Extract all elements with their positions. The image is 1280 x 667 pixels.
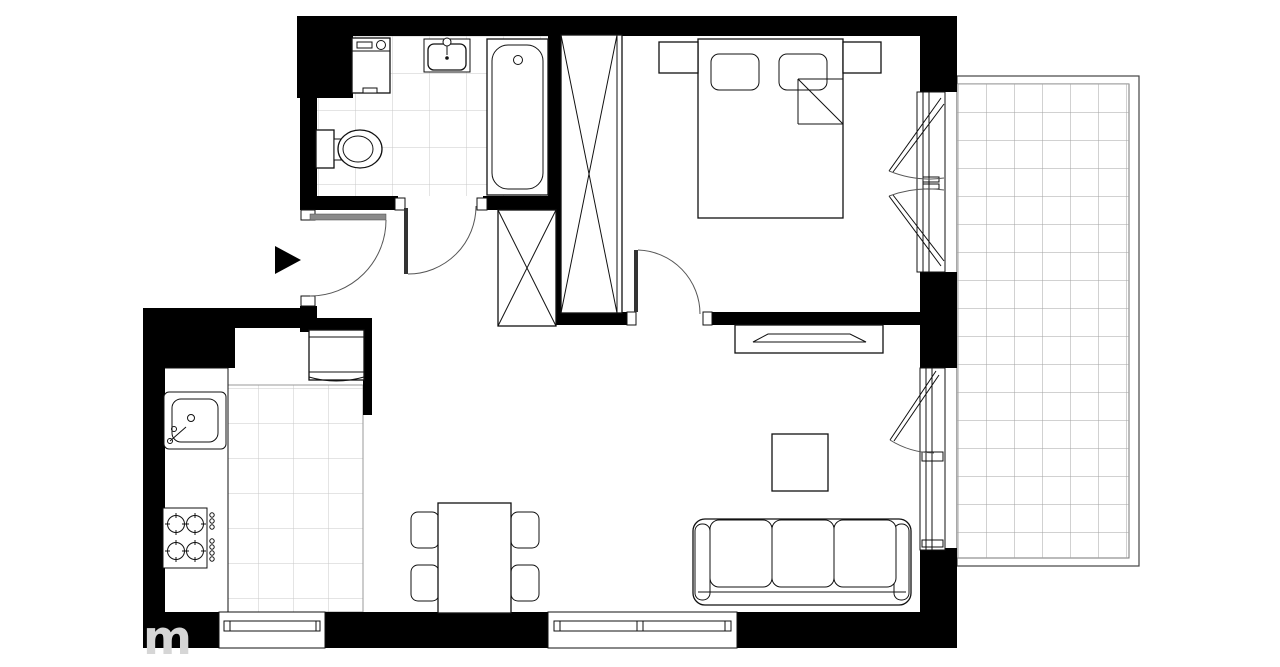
tv-cabinet-symbol xyxy=(735,325,883,353)
fridge-symbol xyxy=(309,330,364,381)
kitchen-window xyxy=(219,612,325,648)
washing-machine-symbol xyxy=(352,38,390,93)
toilet-symbol xyxy=(316,130,382,168)
chair-symbol xyxy=(511,565,539,601)
balcony xyxy=(957,76,1139,566)
bathtub-symbol xyxy=(487,39,548,195)
floor-plan-page: m xyxy=(0,0,1280,667)
cooktop-knobs xyxy=(210,513,214,561)
cooktop-symbol xyxy=(163,508,214,568)
hall-wardrobe-symbol xyxy=(498,210,556,326)
nightstand-left-symbol xyxy=(659,42,698,73)
tv-symbol xyxy=(753,334,866,342)
chair-symbol xyxy=(511,512,539,548)
coffee-table-symbol xyxy=(772,434,828,491)
nightstand-right-symbol xyxy=(843,42,881,73)
floor-plan: m xyxy=(0,0,1280,667)
kitchen-tiles xyxy=(228,385,363,612)
entrance-arrow-icon xyxy=(275,246,301,274)
bedroom-casement-window xyxy=(889,92,945,272)
dining-set-symbol xyxy=(411,503,539,613)
dining-table-symbol xyxy=(438,503,511,613)
living-room-window xyxy=(548,612,737,648)
bedroom-door xyxy=(627,250,712,325)
chair-symbol xyxy=(411,565,439,601)
bathroom-door xyxy=(395,198,487,274)
bedroom-wardrobe-symbol xyxy=(561,35,622,313)
watermark-letter: m xyxy=(143,611,192,666)
chair-symbol xyxy=(411,512,439,548)
kitchen-sink-symbol xyxy=(164,392,226,449)
entrance-door xyxy=(301,210,386,306)
sofa-symbol xyxy=(693,519,911,605)
double-bed-symbol xyxy=(698,39,843,218)
balcony-tiles xyxy=(957,84,1129,558)
washbasin-symbol xyxy=(424,38,470,72)
